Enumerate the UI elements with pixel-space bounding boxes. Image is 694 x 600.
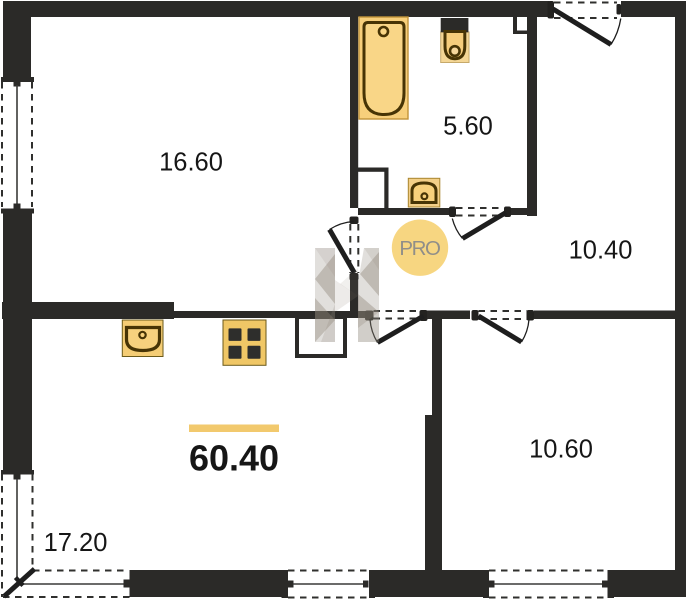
- svg-text:10.60: 10.60: [529, 436, 593, 464]
- svg-text:5.60: 5.60: [443, 113, 493, 141]
- svg-text:10.40: 10.40: [569, 237, 633, 265]
- svg-text:16.60: 16.60: [159, 149, 223, 177]
- svg-text:PRO: PRO: [399, 237, 440, 260]
- svg-text:60.40: 60.40: [189, 438, 279, 479]
- svg-text:17.20: 17.20: [44, 529, 108, 557]
